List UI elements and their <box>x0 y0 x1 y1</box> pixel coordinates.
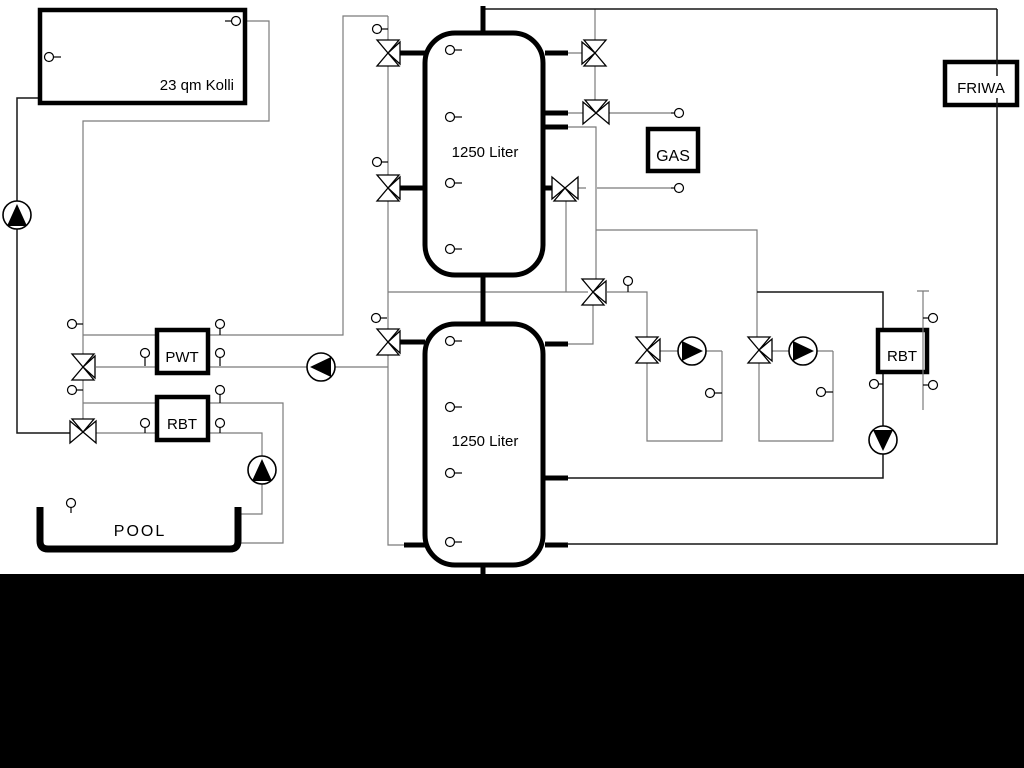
rbt-right-label: RBT <box>887 348 917 365</box>
pwt-label: PWT <box>165 349 198 366</box>
collector-label: 23 qm Kolli <box>160 77 234 94</box>
lower-tank-label: 1250 Liter <box>452 433 519 450</box>
pool-pump <box>248 456 276 484</box>
rbt-circulation-pump <box>869 426 897 454</box>
hydraulic-schematic: 23 qm Kolli 1250 Liter 1250 Liter PWT RB… <box>0 0 1024 768</box>
bottom-black-band <box>0 574 1024 768</box>
circuit1-pump <box>678 337 706 365</box>
friwa-label: FRIWA <box>957 80 1005 97</box>
solar-pump <box>3 201 31 229</box>
circuit2-pump <box>789 337 817 365</box>
pwt-charge-pump <box>307 353 335 381</box>
upper-tank-label: 1250 Liter <box>452 144 519 161</box>
gas-label: GAS <box>656 148 690 165</box>
schematic-canvas: 23 qm Kolli 1250 Liter 1250 Liter PWT RB… <box>0 0 1024 768</box>
pool-label: POOL <box>114 523 166 540</box>
rbt-left-label: RBT <box>167 416 197 433</box>
